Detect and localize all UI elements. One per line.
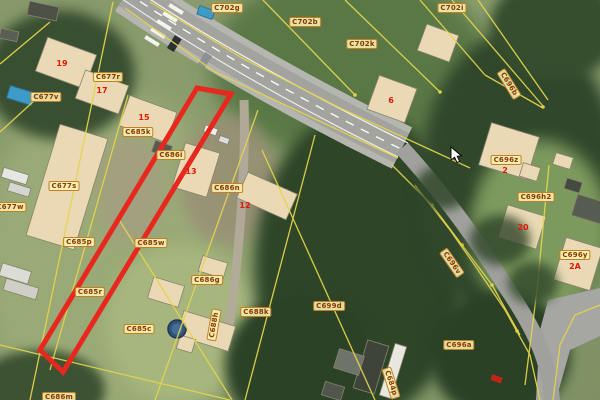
house-number: 2A — [569, 263, 581, 271]
parcel-label[interactable]: C696v — [439, 247, 465, 278]
parcel-label[interactable]: C702g — [211, 3, 243, 13]
labels-layer: C702g C702b C702k C702i C696b C696z C696… — [0, 0, 600, 400]
parcel-label[interactable]: C685r — [75, 287, 105, 297]
parcel-label[interactable]: C685k — [122, 127, 153, 137]
parcel-label[interactable]: C686g — [191, 275, 223, 285]
parcel-label[interactable]: C677w — [0, 202, 27, 212]
parcel-label[interactable]: C696a — [443, 340, 474, 350]
house-number: 12 — [239, 202, 250, 210]
parcel-label[interactable]: C686m — [42, 392, 76, 400]
parcel-label[interactable]: C677v — [30, 92, 61, 102]
parcel-label[interactable]: C696h2 — [518, 192, 555, 202]
parcel-label[interactable]: C696b — [496, 68, 521, 100]
parcel-label[interactable]: C685c — [124, 324, 155, 334]
mouse-cursor — [450, 146, 464, 164]
parcel-label[interactable]: C685p — [63, 237, 95, 247]
house-number: 6 — [388, 97, 394, 105]
parcel-label[interactable]: C677r — [93, 72, 123, 82]
parcel-label[interactable]: C686i — [156, 150, 185, 160]
house-number: 17 — [96, 87, 107, 95]
parcel-label[interactable]: C685w — [134, 238, 167, 248]
house-number: 20 — [517, 224, 528, 232]
parcel-label[interactable]: C686n — [211, 183, 243, 193]
parcel-label[interactable]: C688k — [240, 307, 271, 317]
house-number: 2 — [502, 167, 508, 175]
aerial-map-view[interactable]: C702g C702b C702k C702i C696b C696z C696… — [0, 0, 600, 400]
parcel-label[interactable]: C688h — [206, 309, 221, 342]
parcel-label[interactable]: C684p — [381, 366, 400, 399]
house-number: 15 — [138, 114, 149, 122]
parcel-label[interactable]: C702b — [289, 17, 321, 27]
parcel-label[interactable]: C696z — [491, 155, 522, 165]
house-number: 19 — [56, 60, 67, 68]
parcel-label[interactable]: C699d — [313, 301, 345, 311]
parcel-label[interactable]: C702i — [437, 3, 466, 13]
house-number: 13 — [185, 168, 196, 176]
parcel-label[interactable]: C677s — [49, 181, 80, 191]
parcel-label[interactable]: C702k — [346, 39, 377, 49]
parcel-label[interactable]: C696y — [559, 250, 590, 260]
